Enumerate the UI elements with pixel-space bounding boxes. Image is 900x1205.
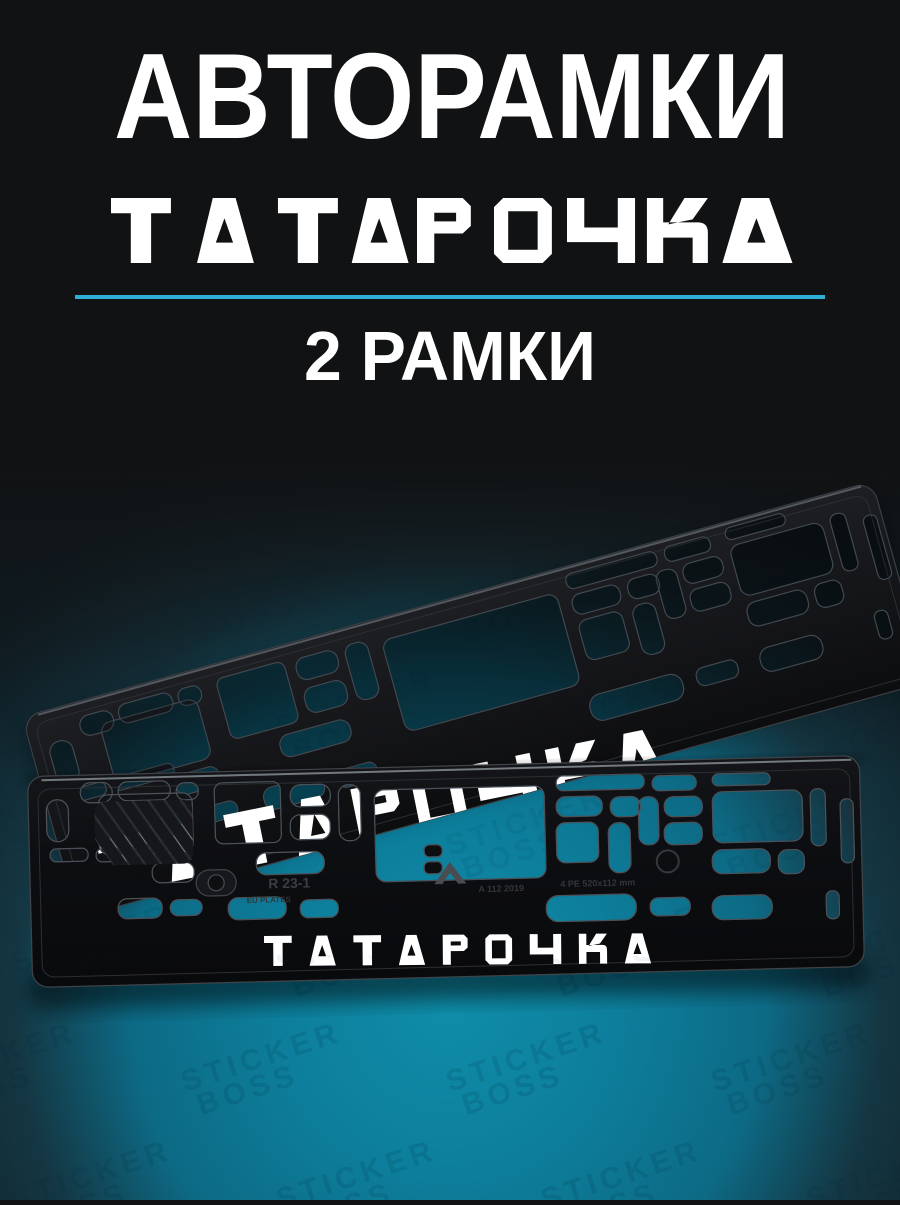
svg-text:4 PE 520x112 mm: 4 PE 520x112 mm (560, 877, 635, 889)
svg-text:R 23-1: R 23-1 (268, 874, 311, 891)
svg-text:АВТОРАМКИ: АВТОРАМКИ (114, 28, 790, 164)
svg-text:EU PLATES: EU PLATES (247, 895, 292, 905)
svg-text:A 112 2019: A 112 2019 (478, 883, 524, 894)
svg-text:2 РАМКИ: 2 РАМКИ (304, 317, 596, 395)
